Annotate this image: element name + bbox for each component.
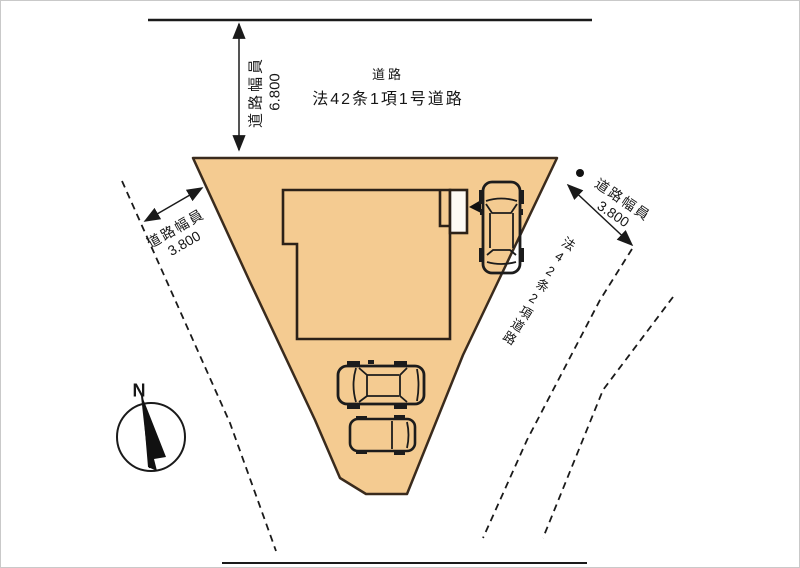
building-porch bbox=[450, 190, 467, 233]
compass-icon bbox=[117, 396, 185, 471]
width-value: 6.800 bbox=[266, 56, 285, 128]
lot-boundary bbox=[193, 158, 557, 494]
compass-needle bbox=[142, 396, 166, 471]
top-road-width-dimension: 道路幅員 6.800 bbox=[247, 56, 285, 128]
compass-north-label: N bbox=[133, 381, 146, 402]
right-road-far-edge-line bbox=[483, 249, 632, 538]
top-road-name: 道路 bbox=[312, 64, 464, 83]
right-outer-edge-line bbox=[543, 297, 673, 538]
top-road-legal-type: 法42条1項1号道路 bbox=[312, 85, 464, 109]
width-label: 道路幅員 bbox=[247, 56, 266, 128]
top-road-label: 道路 法42条1項1号道路 bbox=[312, 64, 464, 109]
corner-marker-dot bbox=[576, 169, 584, 177]
